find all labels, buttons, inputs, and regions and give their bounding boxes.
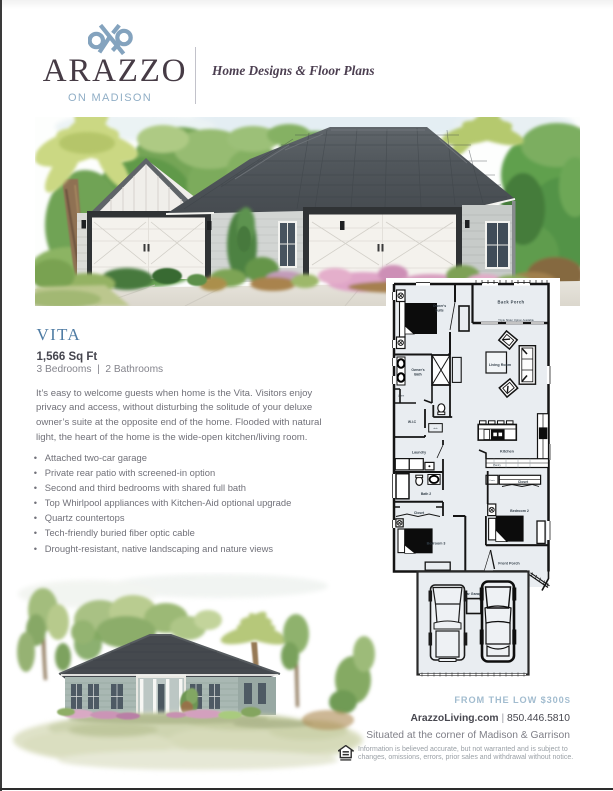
svg-text:Coats: Coats: [489, 479, 496, 482]
svg-text:Front Porch: Front Porch: [498, 562, 520, 566]
svg-text:Back Porch: Back Porch: [497, 300, 524, 305]
svg-text:Living Room: Living Room: [489, 363, 512, 367]
svg-text:Bedroom 3: Bedroom 3: [427, 542, 446, 546]
svg-text:Closet: Closet: [414, 511, 425, 515]
svg-text:Linen: Linen: [398, 394, 405, 398]
svg-text:Laundry: Laundry: [412, 451, 426, 455]
svg-text:Owner's: Owner's: [433, 304, 446, 308]
svg-text:Kitchen: Kitchen: [500, 450, 515, 454]
svg-text:Pantry: Pantry: [493, 463, 501, 467]
svg-text:Bath: Bath: [414, 373, 422, 377]
svg-text:Suite: Suite: [435, 309, 443, 313]
svg-text:Bath 2: Bath 2: [421, 492, 431, 496]
svg-text:Bedroom 2: Bedroom 2: [510, 509, 529, 513]
svg-text:Triple Slider Option Available: Triple Slider Option Available: [498, 318, 534, 322]
svg-text:Closet: Closet: [518, 480, 529, 484]
svg-text:desk: desk: [433, 428, 437, 430]
svg-text:W.I.C: W.I.C: [408, 420, 417, 424]
svg-text:Owner's: Owner's: [411, 368, 424, 372]
